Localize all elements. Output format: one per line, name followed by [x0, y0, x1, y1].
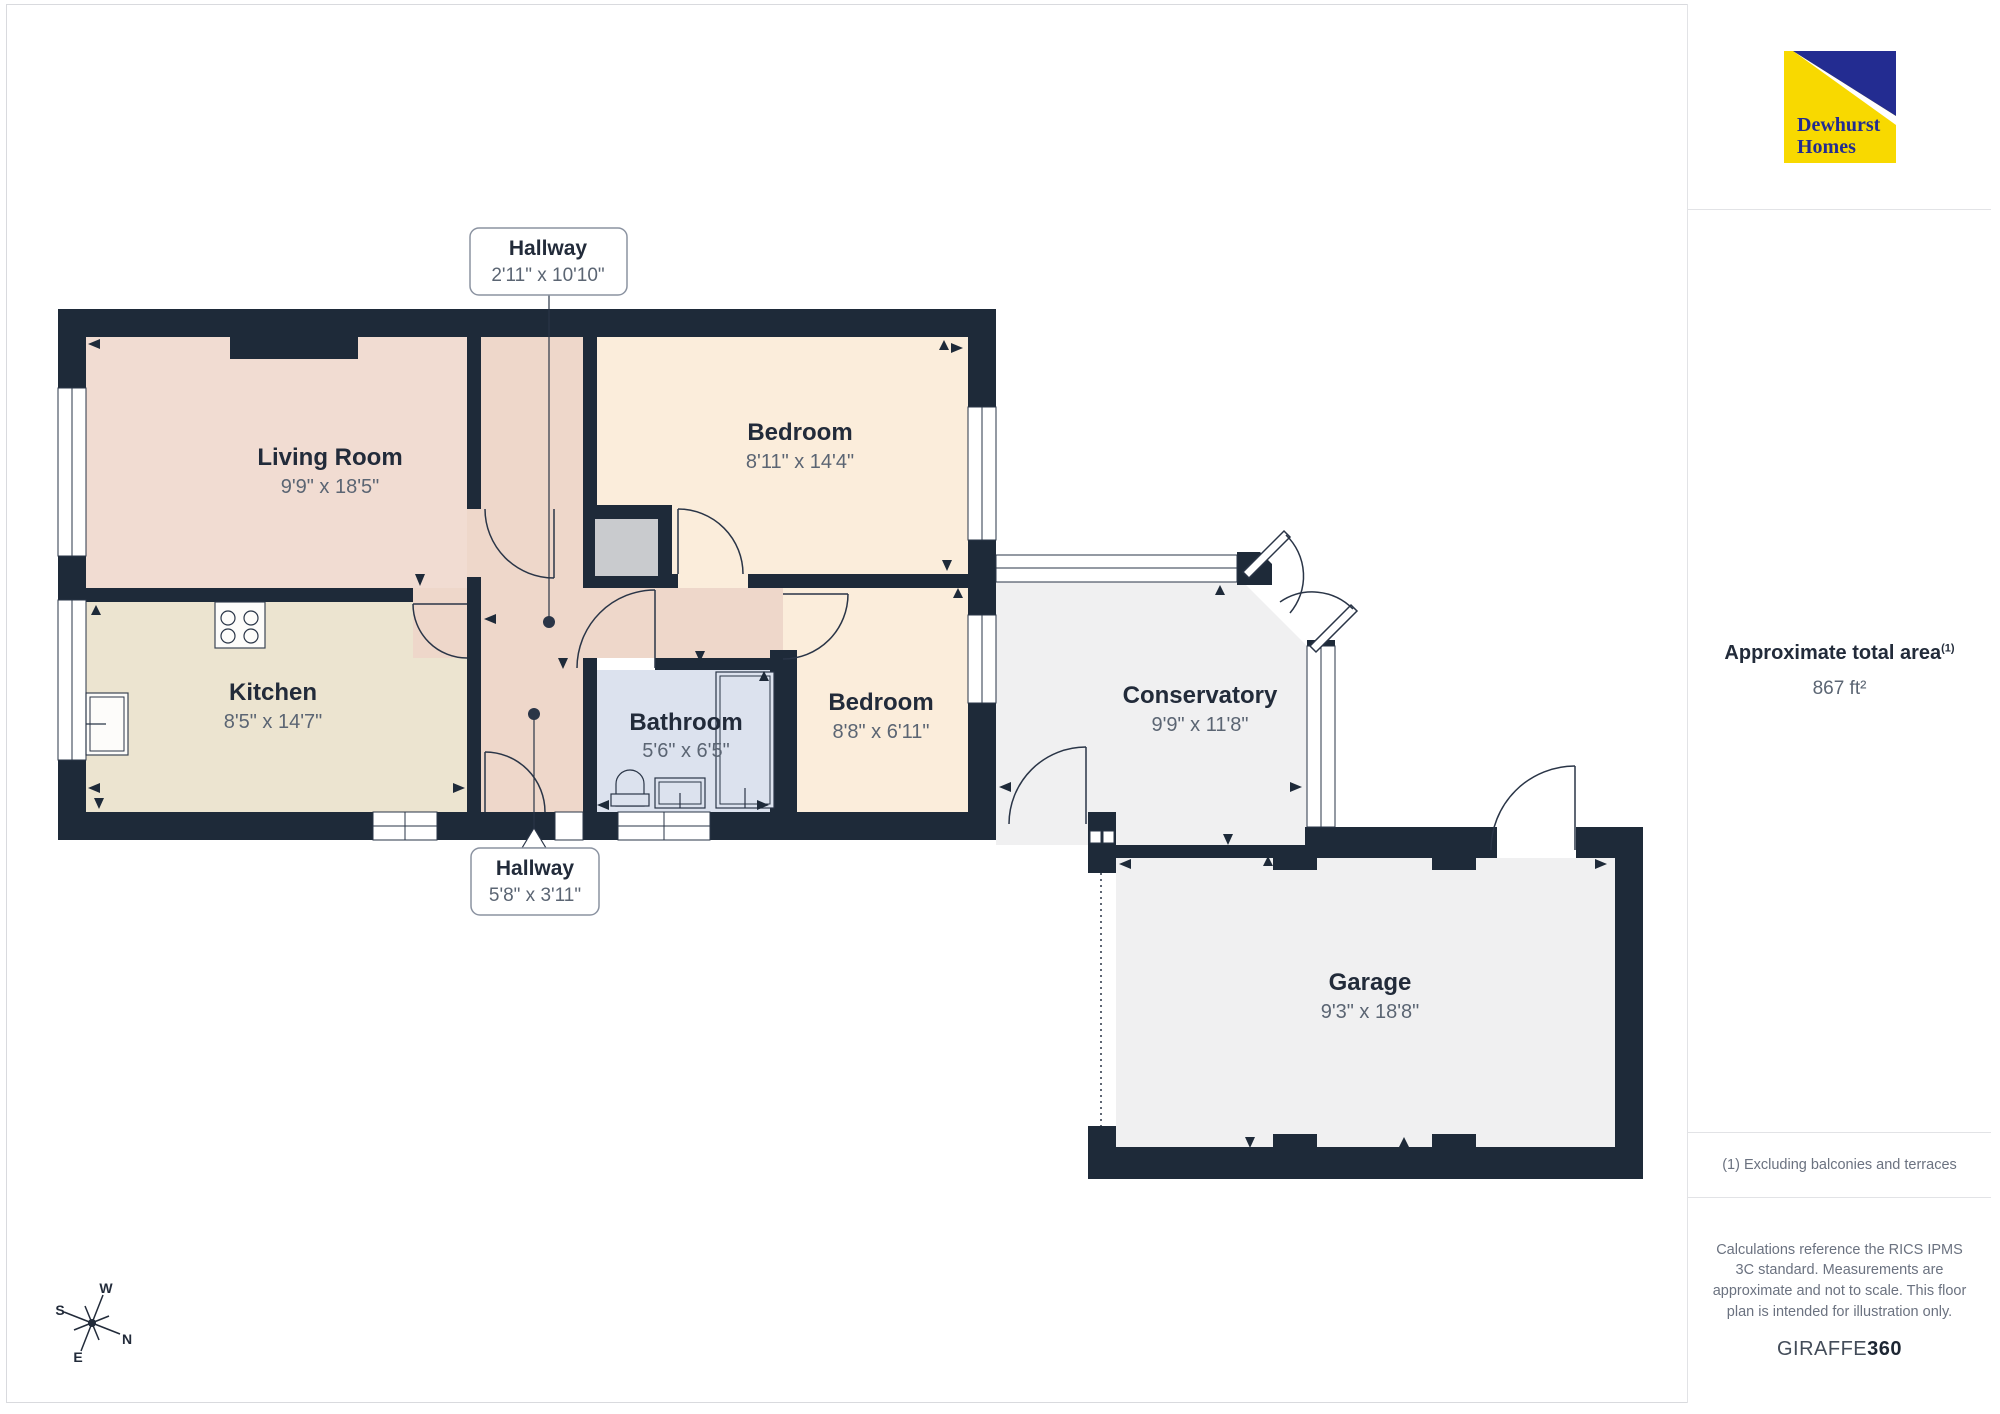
footnote-section: (1) Excluding balconies and terraces	[1688, 1133, 1991, 1198]
dims-garage: 9'3" x 18'8"	[1321, 1001, 1420, 1023]
label-conservatory: Conservatory	[1123, 682, 1278, 709]
total-area-title: Approximate total area(1)	[1724, 642, 1954, 665]
label-living-room: Living Room	[257, 444, 402, 471]
svg-text:Dewhurst: Dewhurst	[1797, 114, 1881, 136]
compass-icon	[64, 1295, 120, 1351]
dewhurst-homes-logo-icon: Dewhurst Homes	[1784, 51, 1896, 163]
label-bedroom-1: Bedroom	[747, 419, 852, 446]
giraffe360-logo: GIRAFFE360	[1777, 1338, 1902, 1361]
logo-section: Dewhurst Homes	[1688, 4, 1991, 210]
dims-kitchen: 8'5" x 14'7"	[224, 711, 323, 733]
callout-top-name: Hallway	[509, 237, 588, 260]
compass-east: E	[73, 1349, 82, 1365]
callout-bottom-name: Hallway	[496, 857, 575, 880]
dims-living-room: 9'9" x 18'5"	[281, 476, 380, 498]
kitchen-stove	[215, 602, 265, 648]
label-bathroom: Bathroom	[629, 709, 742, 736]
disclaimer-section: Calculations reference the RICS IPMS 3C …	[1688, 1198, 1991, 1403]
dims-conservatory: 9'9" x 11'8"	[1151, 714, 1248, 736]
total-area-section: Approximate total area(1) 867 ft²	[1688, 210, 1991, 1133]
chimney-block	[595, 519, 658, 576]
compass-south: S	[55, 1302, 64, 1318]
dims-bedroom-2: 8'8" x 6'11"	[832, 721, 929, 743]
svg-text:Homes: Homes	[1797, 136, 1856, 158]
total-area-value: 867 ft²	[1813, 678, 1867, 700]
compass-west: W	[99, 1280, 113, 1296]
kitchen-sink-unit	[86, 693, 128, 755]
callout-bottom-dims: 5'8" x 3'11"	[489, 885, 581, 906]
label-garage: Garage	[1329, 969, 1412, 996]
label-kitchen: Kitchen	[229, 679, 317, 706]
callout-top-dims: 2'11" x 10'10"	[491, 265, 604, 286]
dims-bathroom: 5'6" x 6'5"	[642, 740, 729, 762]
sidebar: Dewhurst Homes Approximate total area(1)…	[1687, 4, 1991, 1403]
label-bedroom-2: Bedroom	[828, 689, 933, 716]
footnote-text: (1) Excluding balconies and terraces	[1722, 1157, 1957, 1173]
compass-north: N	[122, 1331, 132, 1347]
disclaimer-text: Calculations reference the RICS IPMS 3C …	[1712, 1240, 1968, 1322]
dims-bedroom-1: 8'11" x 14'4"	[746, 451, 854, 473]
